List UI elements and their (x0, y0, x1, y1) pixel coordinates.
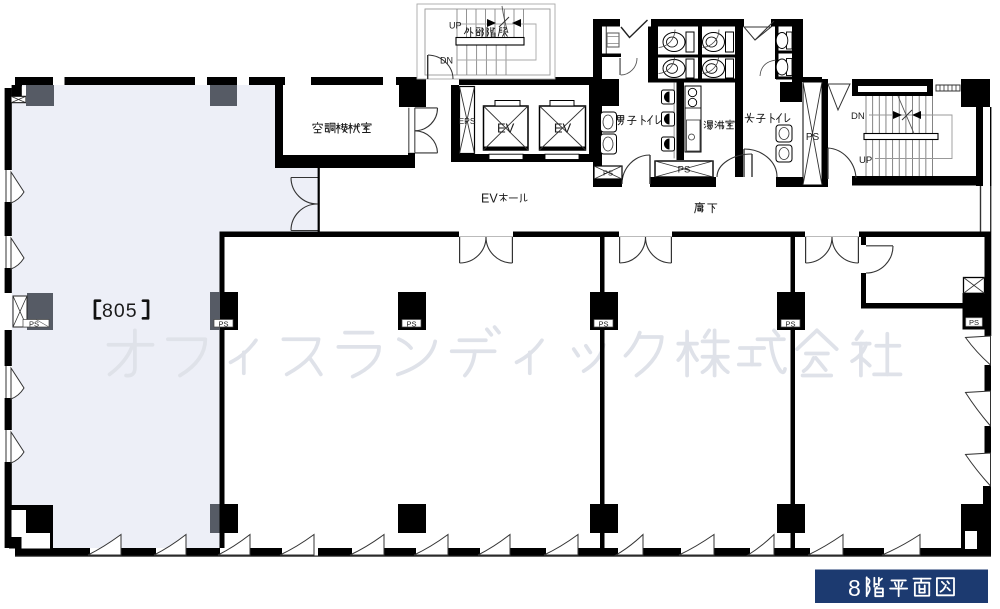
svg-text:UP: UP (859, 155, 872, 166)
svg-text:8: 8 (848, 575, 861, 601)
svg-text:EPS: EPS (458, 116, 475, 126)
svg-text:EV: EV (481, 192, 498, 206)
svg-text:PS: PS (969, 318, 979, 327)
svg-text:EV: EV (554, 121, 572, 136)
svg-text:DN: DN (851, 111, 865, 122)
svg-text:PS: PS (785, 319, 795, 328)
svg-text:EV: EV (497, 121, 515, 136)
svg-text:DN: DN (440, 56, 453, 66)
svg-text:PS: PS (678, 165, 691, 176)
svg-text:PS: PS (603, 168, 613, 177)
svg-text:PS: PS (218, 319, 228, 328)
svg-text:PS: PS (598, 319, 608, 328)
svg-text:PS: PS (29, 319, 39, 328)
svg-text:PS: PS (406, 319, 416, 328)
svg-text:PS: PS (806, 132, 820, 143)
svg-text:805: 805 (102, 300, 138, 322)
svg-text:UP: UP (449, 21, 462, 31)
